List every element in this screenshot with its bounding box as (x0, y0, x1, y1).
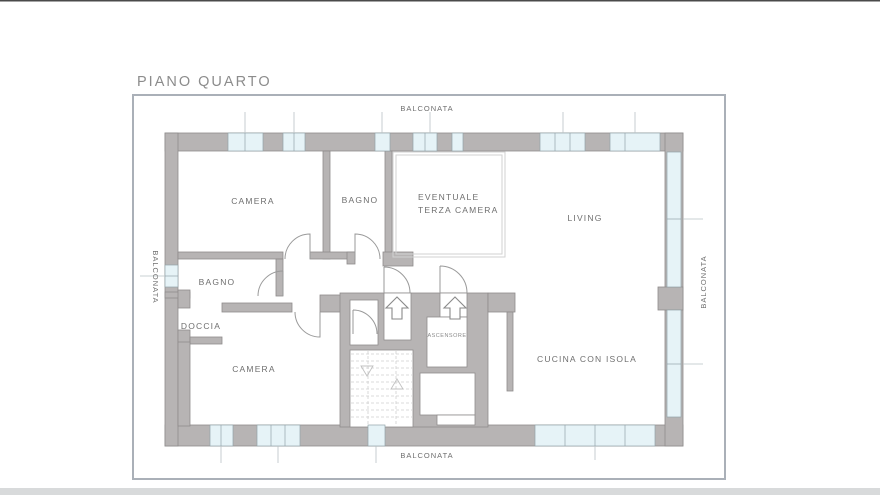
room-label-camera-bottom: CAMERA (232, 364, 276, 374)
window-segment (667, 152, 681, 287)
room-label-terza-line1: EVENTUALE (418, 192, 479, 202)
wall-segment (178, 252, 283, 259)
wall-segment (276, 259, 283, 296)
room-label-terza-line2: TERZA CAMERA (418, 205, 499, 215)
wall-segment (165, 133, 178, 446)
storage-room (420, 373, 475, 415)
bottom-edge-bar (0, 488, 880, 495)
window-segment (610, 133, 660, 151)
wall-segment (178, 290, 190, 308)
elevator-shaft (427, 317, 467, 367)
window-segment (667, 310, 681, 417)
wall-segment (222, 303, 292, 312)
window-segment (452, 133, 463, 151)
room-label-bagno-top: BAGNO (342, 195, 379, 205)
floor-plan-canvas: PIANO QUARTO (0, 0, 880, 495)
window-segment (257, 425, 300, 446)
window-segment (368, 425, 385, 446)
wall-segment (385, 151, 392, 259)
balcony-label-top: BALCONATA (400, 104, 453, 113)
balcony-label-bottom: BALCONATA (400, 451, 453, 460)
page-title: PIANO QUARTO (137, 74, 272, 90)
stairwell (350, 350, 413, 427)
balcony-label-left: BALCONATA (151, 250, 160, 303)
room-label-doccia: DOCCIA (181, 321, 221, 331)
room-label-camera-top: CAMERA (231, 196, 275, 206)
wall-segment (178, 342, 190, 426)
top-edge-line (0, 0, 880, 2)
window-segment (375, 133, 390, 151)
room-label-cucina: CUCINA CON ISOLA (537, 354, 637, 364)
floor-plan-page: PIANO QUARTO (0, 0, 880, 495)
storage-room (437, 415, 475, 425)
wall-segment (658, 287, 683, 310)
room-label-ascensore: ASCENSORE (427, 333, 466, 339)
wall-segment (320, 295, 342, 312)
window-segment (210, 425, 233, 446)
wall-segment (347, 252, 355, 264)
wall-segment (323, 151, 330, 259)
window-segment (540, 133, 585, 151)
wall-segment (488, 293, 515, 312)
balcony-label-right: BALCONATA (699, 255, 708, 308)
room-label-living: LIVING (567, 213, 602, 223)
wall-segment (190, 337, 222, 344)
window-segment (228, 133, 263, 151)
wall-segment (507, 312, 513, 391)
room-label-bagno-mid: BAGNO (199, 277, 236, 287)
